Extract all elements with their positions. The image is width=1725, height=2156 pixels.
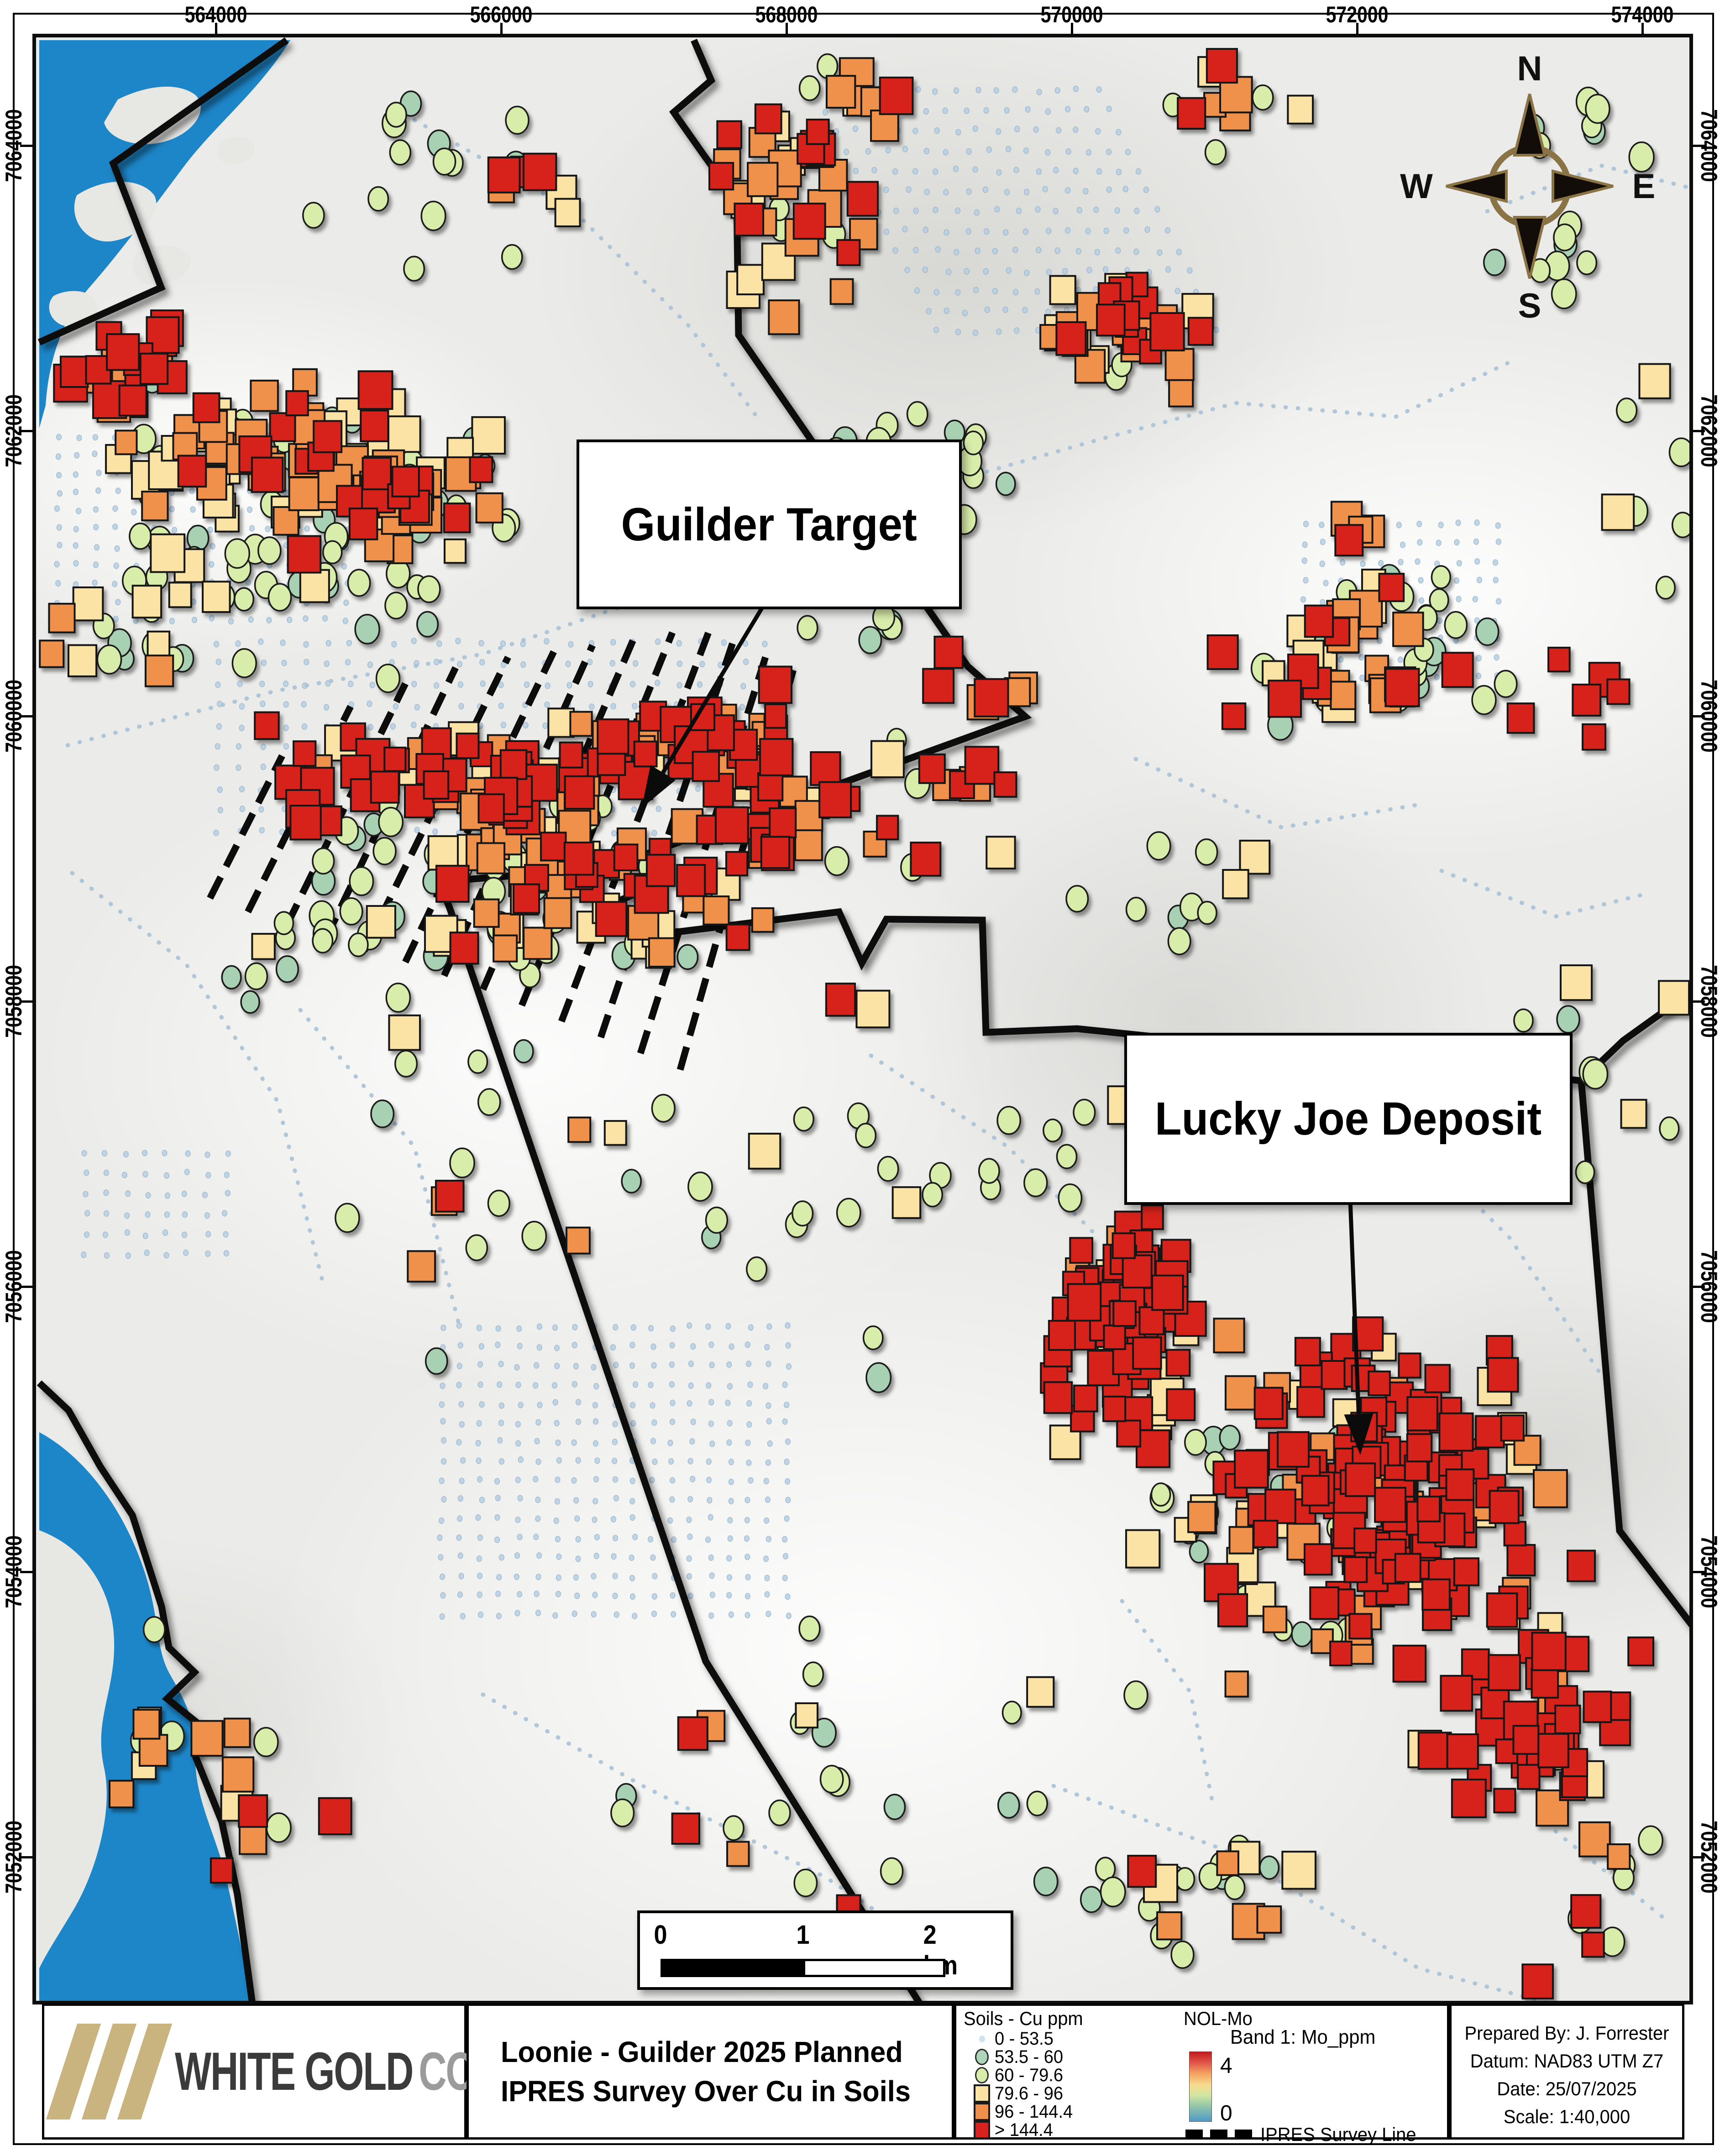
legend-swatch-square bbox=[974, 2121, 990, 2139]
northing-tick-left bbox=[20, 1856, 33, 1858]
annotation-lucky-label: Lucky Joe Deposit bbox=[1155, 1092, 1541, 1146]
northing-tick-right bbox=[1692, 145, 1705, 147]
legend-item-label: 60 - 79.6 bbox=[995, 2065, 1063, 2086]
easting-tick bbox=[1071, 23, 1073, 35]
scale-bar-empty-segment bbox=[803, 1961, 943, 1975]
legend-item: 96 - 144.4 bbox=[969, 2103, 1077, 2121]
annotation-guilder-label: Guilder Target bbox=[621, 498, 917, 551]
northing-tick-right bbox=[1692, 1000, 1705, 1003]
soil-sample-points bbox=[40, 49, 1689, 1999]
mo-band-label: Band 1: Mo_ppm bbox=[1230, 2026, 1375, 2049]
legend-item-label: 0 - 53.5 bbox=[995, 2029, 1054, 2049]
mo-max-label: 4 bbox=[1220, 2053, 1232, 2078]
legend-swatch-circle bbox=[975, 2067, 989, 2083]
northing-tick-left bbox=[20, 145, 33, 147]
easting-tick bbox=[500, 23, 503, 35]
legend-swatch-square bbox=[974, 2084, 990, 2103]
annotation-guilder-target: Guilder Target bbox=[577, 440, 962, 609]
mo-gradient-bar bbox=[1189, 2051, 1212, 2122]
ipres-dashed-line-icon bbox=[1185, 2130, 1252, 2140]
legend-swatch-square bbox=[974, 2103, 990, 2121]
easting-tick bbox=[215, 23, 217, 35]
northing-tick-left bbox=[20, 1000, 33, 1003]
scale-bar-filled-segment bbox=[663, 1961, 803, 1975]
map-info-cell: Prepared By: J. Forrester Datum: NAD83 U… bbox=[1449, 2004, 1684, 2140]
easting-tick bbox=[1356, 23, 1358, 35]
logo-cell: WHITE GOLDCORP bbox=[42, 2004, 467, 2140]
svg-text:W: W bbox=[1400, 167, 1433, 206]
ipres-survey-line-label: IPRES Survey Line bbox=[1260, 2124, 1416, 2146]
scale-label-1: 1 bbox=[796, 1920, 809, 1950]
svg-text:S: S bbox=[1518, 287, 1541, 325]
prepared-by: Prepared By: J. Forrester bbox=[1458, 2020, 1677, 2047]
legend-item-label: > 144.4 bbox=[995, 2120, 1053, 2140]
legend-item-label: 53.5 - 60 bbox=[995, 2047, 1063, 2067]
northing-tick-right bbox=[1692, 430, 1705, 432]
soils-legend-heading: Soils - Cu ppm bbox=[964, 2008, 1083, 2030]
soils-legend-items: 0 - 53.553.5 - 6060 - 79.679.6 - 9696 - … bbox=[969, 2030, 1077, 2139]
legend-swatch-circle bbox=[975, 2049, 989, 2065]
northing-tick-left bbox=[20, 430, 33, 432]
legend-item: > 144.4 bbox=[969, 2121, 1077, 2139]
legend-item: 53.5 - 60 bbox=[969, 2048, 1077, 2066]
svg-text:E: E bbox=[1632, 167, 1656, 206]
ipres-survey-line-legend: IPRES Survey Line bbox=[1185, 2124, 1425, 2146]
legend-item-label: 79.6 - 96 bbox=[995, 2083, 1063, 2104]
northing-tick-left bbox=[20, 715, 33, 717]
white-gold-logo-icon bbox=[62, 2024, 157, 2119]
scale-label-0: 0 bbox=[654, 1920, 667, 1950]
legend-item: 60 - 79.6 bbox=[969, 2066, 1077, 2084]
mo-min-label: 0 bbox=[1220, 2101, 1232, 2126]
map-scale: Scale: 1:40,000 bbox=[1458, 2103, 1677, 2131]
map-title-line1: Loonie - Guilder 2025 Planned bbox=[501, 2032, 933, 2072]
easting-tick bbox=[1641, 23, 1644, 35]
map-canvas: NSWE Guilder Target Lucky Joe Deposit 0 … bbox=[32, 34, 1693, 2004]
legend-item: 79.6 - 96 bbox=[969, 2084, 1077, 2103]
legend-swatch-dot bbox=[979, 2036, 985, 2042]
svg-text:N: N bbox=[1517, 49, 1542, 88]
legend-item-label: 96 - 144.4 bbox=[995, 2102, 1073, 2122]
northing-tick-right bbox=[1692, 1286, 1705, 1288]
annotation-lucky-joe: Lucky Joe Deposit bbox=[1124, 1033, 1573, 1205]
map-layers: NSWE bbox=[36, 37, 1689, 2001]
northing-tick-right bbox=[1692, 1571, 1705, 1573]
map-title-cell: Loonie - Guilder 2025 Planned IPRES Surv… bbox=[467, 2004, 954, 2140]
scale-bar: 0 1 2 km bbox=[637, 1910, 1013, 1990]
legend-cell: Soils - Cu ppm 0 - 53.553.5 - 6060 - 79.… bbox=[954, 2004, 1449, 2140]
northing-tick-left bbox=[20, 1286, 33, 1288]
easting-tick bbox=[786, 23, 788, 35]
northing-tick-right bbox=[1692, 1856, 1705, 1858]
map-sheet: NSWE Guilder Target Lucky Joe Deposit 0 … bbox=[0, 0, 1725, 2156]
date: Date: 25/07/2025 bbox=[1458, 2075, 1677, 2103]
northing-tick-left bbox=[20, 1571, 33, 1573]
datum: Datum: NAD83 UTM Z7 bbox=[1458, 2047, 1677, 2075]
legend-item: 0 - 53.5 bbox=[969, 2030, 1077, 2048]
northing-tick-right bbox=[1692, 715, 1705, 717]
scale-bar-graphic bbox=[661, 1959, 945, 1977]
compass-rose-icon: NSWE bbox=[1400, 49, 1655, 325]
map-title-line2: IPRES Survey Over Cu in Soils bbox=[501, 2072, 933, 2111]
